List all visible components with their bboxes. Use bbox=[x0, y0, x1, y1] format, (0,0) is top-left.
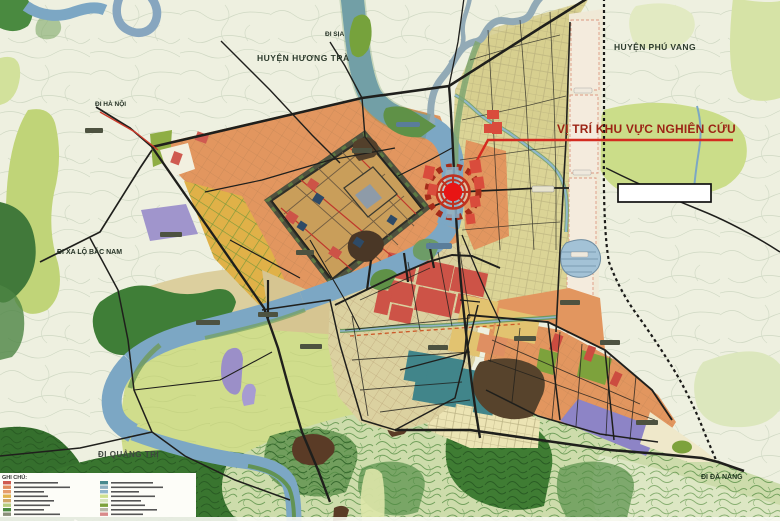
svg-text:ĐI ĐÀ NẴNG: ĐI ĐÀ NẴNG bbox=[701, 472, 743, 481]
svg-text:ĐI QUẢNG TRỊ: ĐI QUẢNG TRỊ bbox=[98, 450, 159, 459]
svg-text:HUYỆN HƯƠNG TRÀ: HUYỆN HƯƠNG TRÀ bbox=[257, 52, 350, 63]
svg-text:ĐI SỊA: ĐI SỊA bbox=[325, 31, 344, 38]
svg-text:HUYỆN PHÚ VANG: HUYỆN PHÚ VANG bbox=[614, 41, 696, 52]
svg-text:VỊ TRÍ KHU VỰC NGHIÊN CỨU: VỊ TRÍ KHU VỰC NGHIÊN CỨU bbox=[557, 121, 736, 136]
svg-text:GHI CHÚ:: GHI CHÚ: bbox=[2, 474, 27, 481]
svg-text:ĐI XA LỘ BẮC NAM: ĐI XA LỘ BẮC NAM bbox=[57, 247, 122, 256]
svg-text:ĐI HÀ NỘI: ĐI HÀ NỘI bbox=[95, 99, 126, 108]
